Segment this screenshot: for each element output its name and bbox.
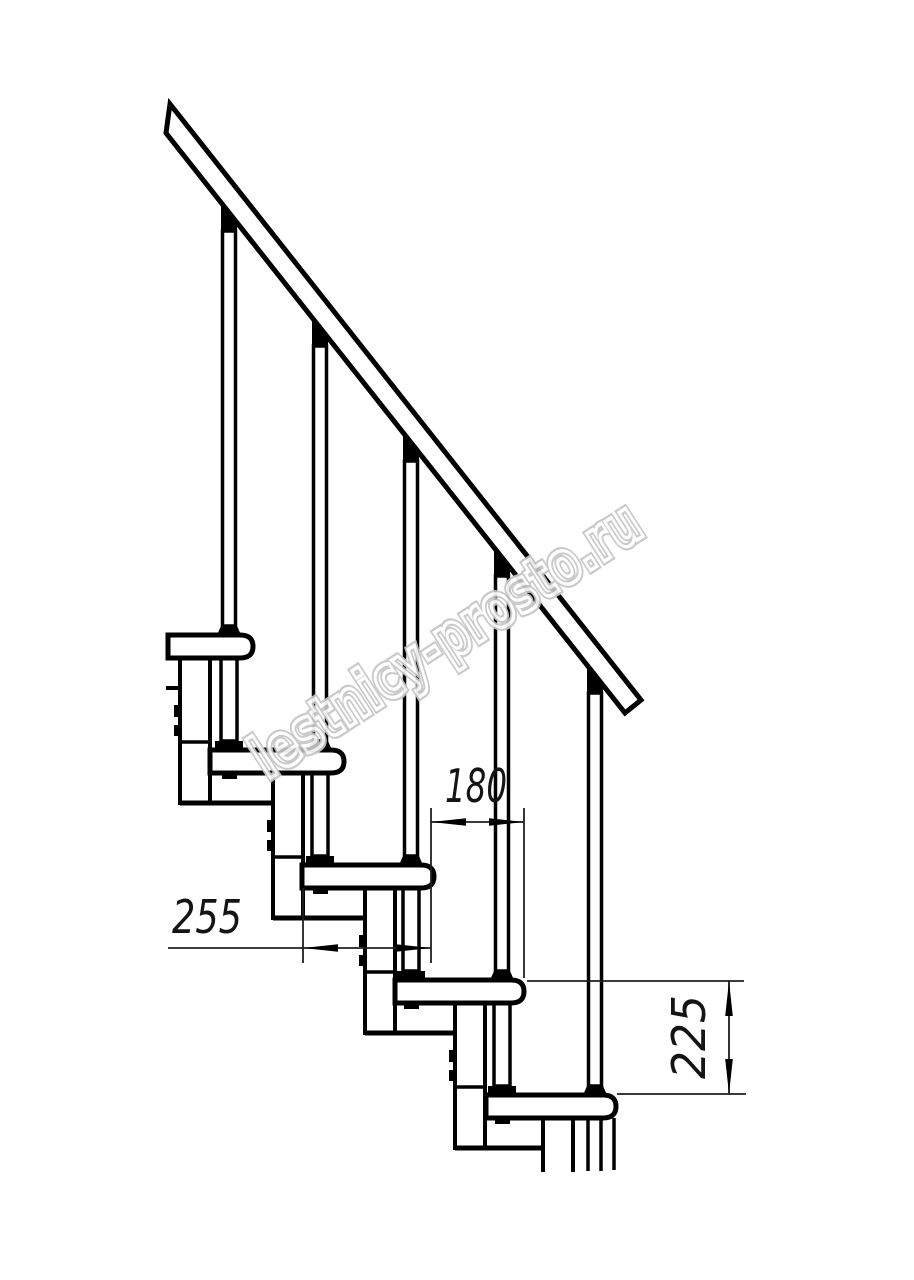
drawing-canvas: 255 180 225 lestnicy-prosto.ru lestnicy-…: [0, 0, 914, 1280]
support-module-2: [267, 772, 365, 918]
tread-5: [486, 1095, 616, 1118]
column-tube: [403, 888, 419, 971]
tube-flange: [306, 856, 334, 865]
column-tube: [312, 773, 328, 856]
bolt-lug: [174, 725, 182, 736]
baluster-foot: [217, 626, 241, 635]
bolt-lug: [174, 705, 182, 717]
under-tread-bolt: [313, 888, 328, 894]
tube-flange: [488, 1086, 516, 1095]
baluster-foot: [490, 971, 514, 980]
bolt-lug: [359, 955, 367, 966]
support-module-3: [359, 887, 455, 1033]
baluster-foot: [399, 856, 423, 865]
dimension-label-180: 180: [445, 759, 507, 813]
arrowhead-down: [725, 1059, 733, 1094]
support-module-5: [543, 1118, 614, 1172]
tread-1: [168, 635, 253, 658]
tread-3: [302, 865, 434, 888]
under-tread-bolt: [222, 773, 237, 779]
under-tread-bolt: [495, 1118, 510, 1124]
dimension-riser-height-225: 225: [527, 981, 746, 1094]
tube-flange: [397, 971, 425, 980]
arrowhead-left: [303, 944, 338, 952]
arrowhead-left: [431, 818, 466, 826]
bolt-lug: [359, 935, 367, 947]
baluster-1: [217, 203, 241, 635]
arrowhead-up: [725, 981, 733, 1016]
under-tread-bolt: [404, 1003, 419, 1009]
dimension-label-225: 225: [662, 995, 716, 1079]
baluster-5: [583, 666, 607, 1095]
baluster-foot: [583, 1086, 607, 1095]
bolt-lug: [267, 820, 275, 832]
support-module-4: [449, 1002, 543, 1148]
bolt-lug: [267, 840, 275, 851]
column-tube: [494, 1003, 510, 1086]
bolt-lug: [449, 1050, 457, 1062]
column-tube: [221, 658, 237, 741]
tread-4: [395, 980, 524, 1003]
dimension-label-255: 255: [172, 890, 242, 944]
tube-flange: [215, 741, 243, 750]
bolt-lug: [449, 1070, 457, 1081]
